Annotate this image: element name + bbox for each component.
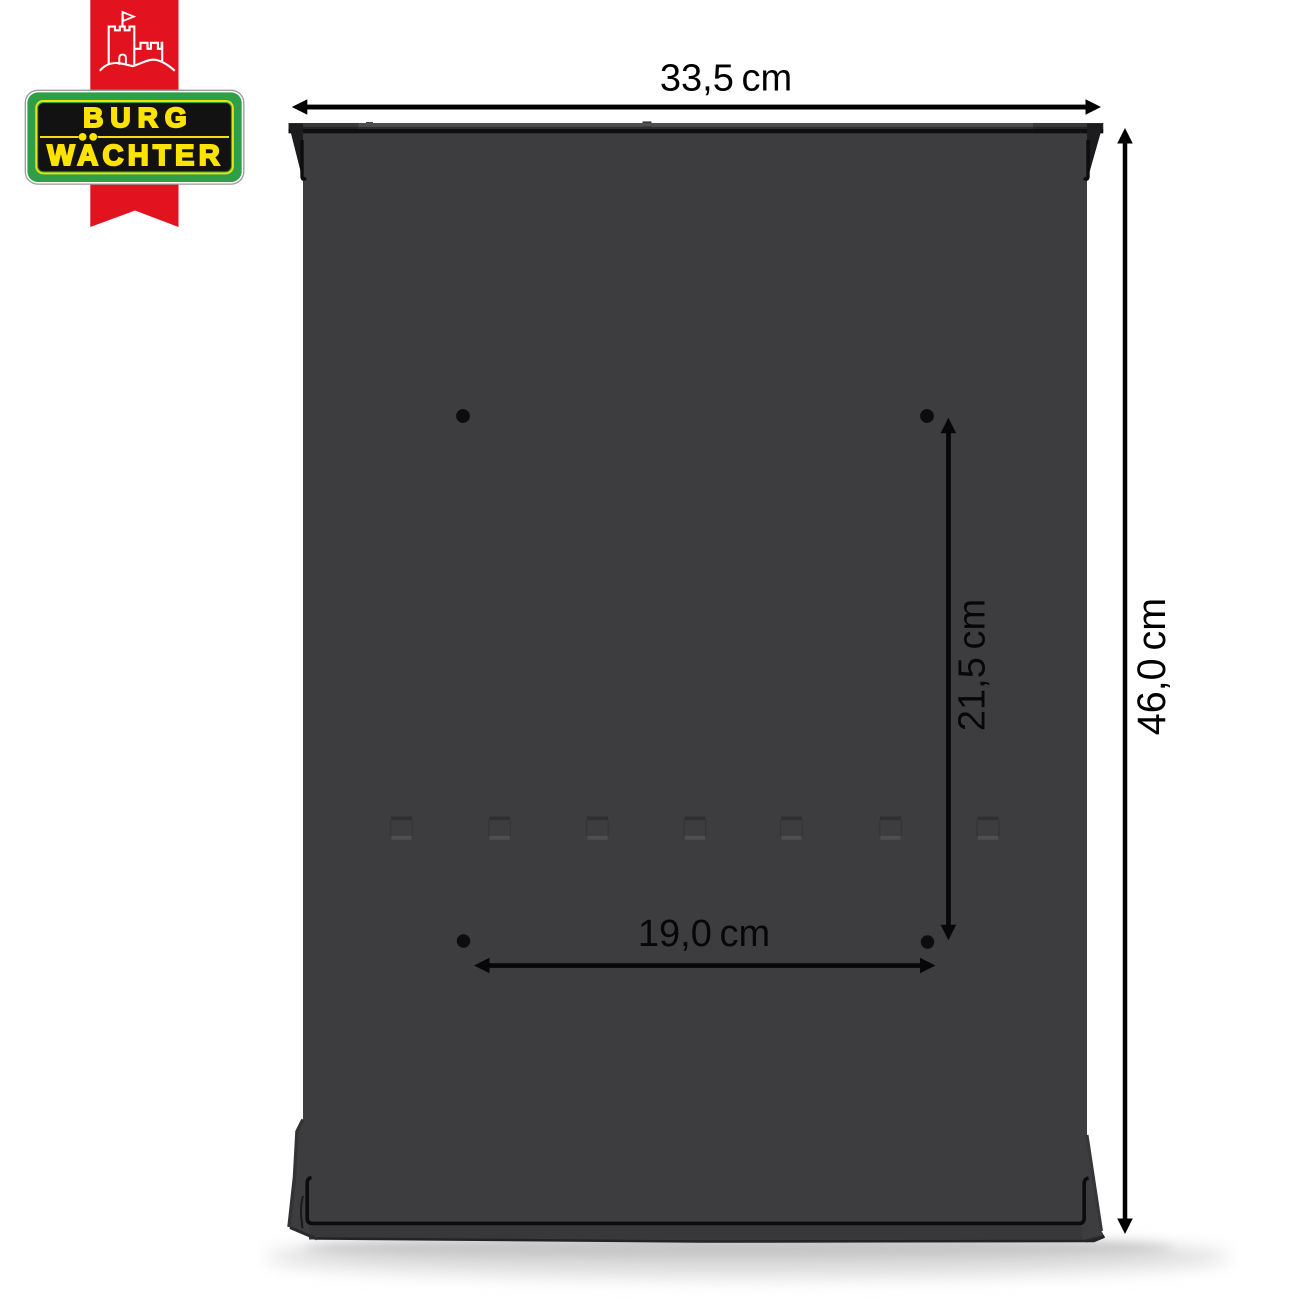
svg-text:21,5 cm: 21,5 cm: [952, 599, 994, 731]
svg-text:33,5 cm: 33,5 cm: [660, 58, 792, 100]
svg-text:WACHTER: WACHTER: [47, 140, 224, 172]
svg-text:46,0 cm: 46,0 cm: [1130, 598, 1174, 735]
svg-text:19,0 cm: 19,0 cm: [638, 913, 770, 955]
svg-text:BURG: BURG: [83, 102, 193, 133]
